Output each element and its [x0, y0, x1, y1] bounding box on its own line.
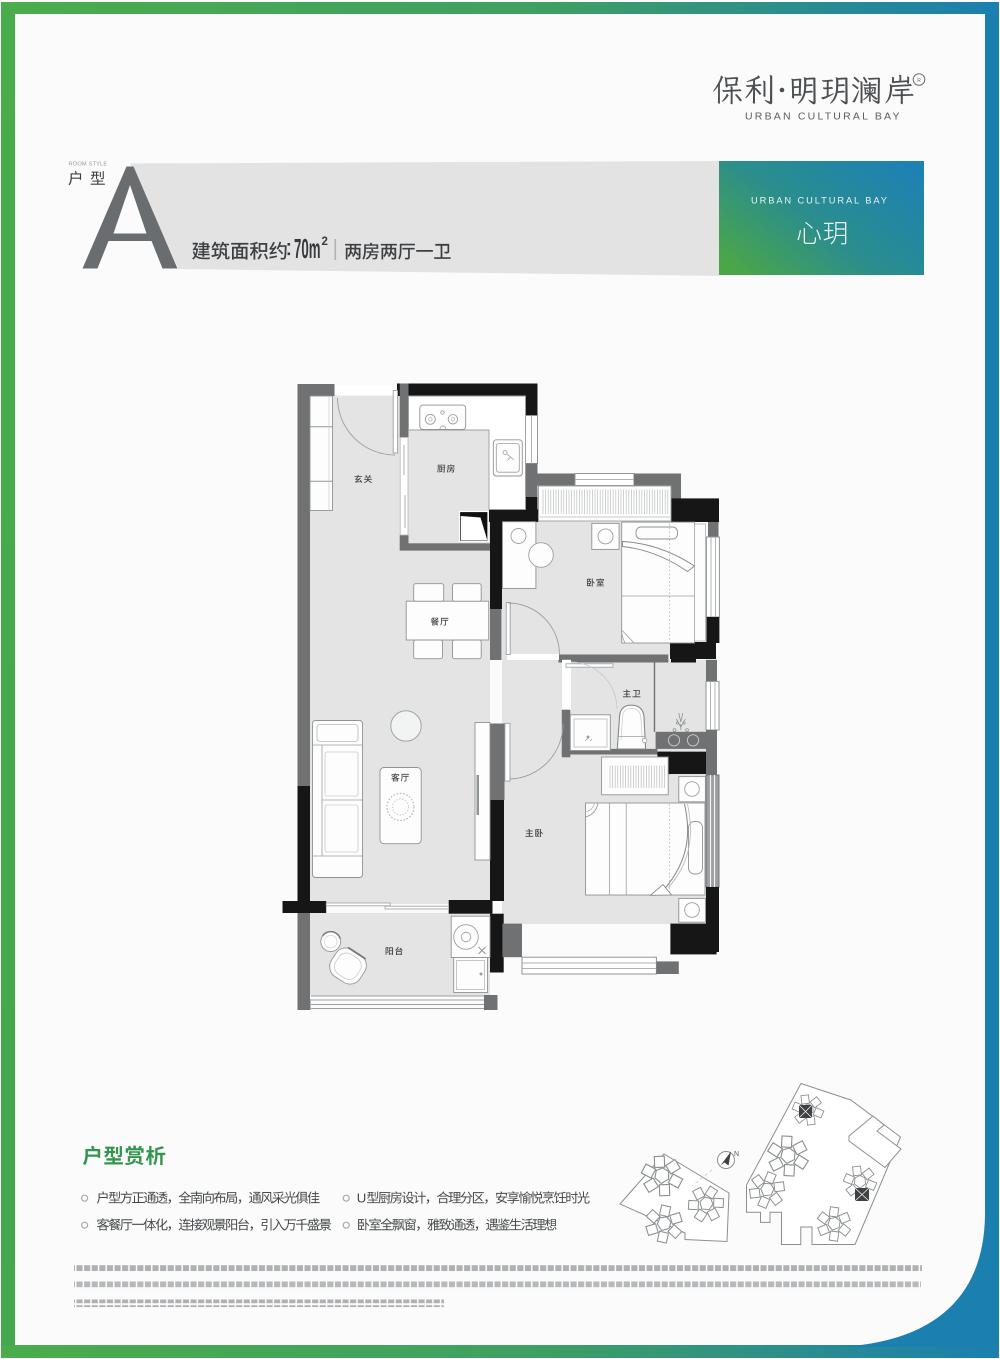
svg-text:N: N: [734, 1151, 739, 1158]
svg-text:URBAN CULTURAL BAY: URBAN CULTURAL BAY: [751, 196, 889, 206]
svg-text:70m: 70m: [294, 233, 321, 264]
svg-text:ROOM STYLE: ROOM STYLE: [69, 162, 108, 168]
svg-text:URBAN CULTURAL BAY: URBAN CULTURAL BAY: [745, 111, 902, 123]
svg-text:R: R: [917, 78, 921, 84]
svg-text:2: 2: [322, 236, 328, 248]
svg-text:U: U: [357, 1191, 367, 1206]
